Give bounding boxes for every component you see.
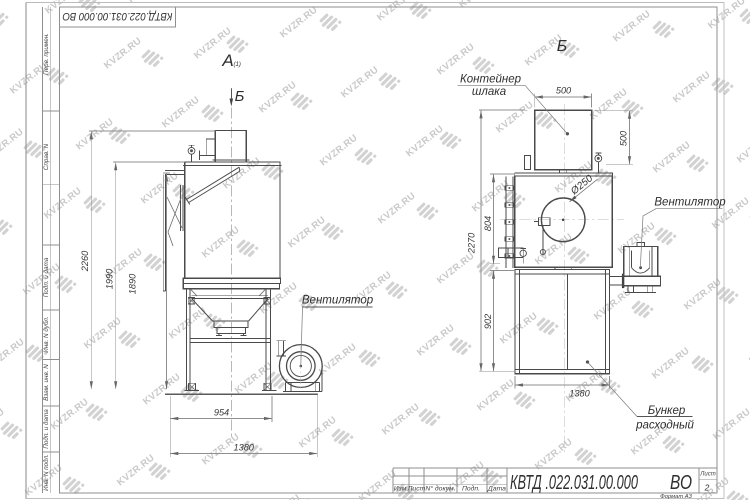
svg-text:KVZR.RU: KVZR.RU [533, 436, 575, 472]
svg-text:804: 804 [483, 216, 493, 231]
svg-text:KVZR.RU: KVZR.RU [42, 185, 84, 221]
svg-text:А: А [221, 51, 233, 70]
svg-text:KVZR.RU: KVZR.RU [611, 8, 653, 44]
svg-text:Подп. и дата: Подп. и дата [42, 409, 50, 449]
svg-text:KVZR.RU: KVZR.RU [375, 0, 417, 23]
svg-text:Лист: Лист [407, 486, 426, 493]
svg-text:Перв. примен.: Перв. примен. [43, 33, 50, 75]
svg-text:KVZR.RU: KVZR.RU [690, 475, 732, 500]
svg-text:KVZR.RU: KVZR.RU [82, 315, 124, 351]
svg-text:KVZR.RU: KVZR.RU [404, 123, 446, 159]
svg-text:KVZR.RU: KVZR.RU [286, 214, 328, 250]
svg-text:KVZR.RU: KVZR.RU [376, 190, 418, 226]
svg-text:KVZR.RU: KVZR.RU [0, 336, 27, 372]
svg-text:KVZR.RU: KVZR.RU [592, 286, 634, 322]
svg-text:KVZR.RU: KVZR.RU [533, 231, 575, 267]
svg-text:2270: 2270 [467, 232, 477, 254]
svg-text:KVZR.RU: KVZR.RU [651, 139, 693, 175]
svg-text:Вентилятор: Вентилятор [302, 295, 374, 307]
svg-text:500: 500 [618, 130, 628, 146]
svg-text:KVZR.RU: KVZR.RU [498, 310, 540, 346]
svg-text:KVZR.RU: KVZR.RU [141, 371, 183, 407]
svg-text:500: 500 [556, 86, 572, 96]
svg-text:KVZR.RU: KVZR.RU [435, 41, 477, 77]
svg-text:KVZR.RU: KVZR.RU [297, 414, 339, 450]
svg-text:KVZR.RU: KVZR.RU [0, 126, 26, 162]
svg-text:KVZR.RU: KVZR.RU [494, 99, 536, 135]
svg-text:Контейнер: Контейнер [460, 74, 522, 86]
svg-text:КВТД.022.031.00.000 ВО: КВТД.022.031.00.000 ВО [62, 10, 172, 22]
svg-text:KVZR.RU: KVZR.RU [49, 396, 91, 432]
svg-text:Подп.: Подп. [462, 485, 480, 493]
svg-text:Дата: Дата [487, 486, 506, 493]
svg-text:KVZR.RU: KVZR.RU [735, 129, 750, 165]
svg-text:N° докум.: N° докум. [425, 485, 455, 493]
svg-text:KVZR.RU: KVZR.RU [415, 322, 457, 358]
svg-text:1380: 1380 [233, 443, 254, 453]
svg-text:KVZR.RU: KVZR.RU [102, 35, 144, 71]
svg-text:КВТД .022.031.00.000: КВТД .022.031.00.000 [510, 472, 638, 494]
svg-text:KVZR.RU: KVZR.RU [671, 69, 713, 105]
svg-text:Подп. и дата: Подп. и дата [42, 257, 50, 297]
svg-text:Взам. инв. N: Взам. инв. N [43, 364, 50, 401]
svg-text:1380: 1380 [569, 389, 590, 399]
svg-text:KVZR.RU: KVZR.RU [650, 345, 692, 381]
svg-text:Изм.: Изм. [394, 486, 409, 493]
svg-text:Инв. N дубл.: Инв. N дубл. [42, 316, 50, 352]
svg-text:1890: 1890 [128, 273, 138, 294]
svg-text:KVZR.RU: KVZR.RU [457, 0, 499, 10]
svg-text:KVZR.RU: KVZR.RU [475, 377, 517, 413]
svg-text:2260: 2260 [80, 250, 90, 272]
svg-text:KVZR.RU: KVZR.RU [435, 250, 477, 286]
svg-text:Инв. N подл.: Инв. N подл. [42, 454, 50, 491]
svg-text:Справ. N: Справ. N [43, 143, 50, 170]
svg-text:902: 902 [483, 314, 493, 329]
svg-text:1990: 1990 [104, 268, 114, 289]
svg-text:KVZR.RU: KVZR.RU [200, 224, 242, 260]
svg-text:KVZR.RU: KVZR.RU [318, 132, 360, 168]
svg-text:Лист: Лист [699, 472, 715, 478]
svg-text:ВО: ВО [670, 472, 692, 494]
svg-text:KVZR.RU: KVZR.RU [317, 341, 359, 377]
svg-text:KVZR.RU: KVZR.RU [21, 261, 63, 297]
svg-text:954: 954 [214, 408, 229, 418]
svg-text:KVZR.RU: KVZR.RU [339, 64, 381, 100]
svg-text:2: 2 [704, 483, 710, 493]
svg-text:(1): (1) [234, 62, 241, 68]
svg-text:KVZR.RU: KVZR.RU [221, 155, 263, 191]
svg-text:Формат А3: Формат А3 [660, 494, 692, 500]
svg-text:Бункер: Бункер [648, 405, 686, 417]
svg-text:KVZR.RU: KVZR.RU [278, 4, 320, 40]
svg-text:расходный: расходный [635, 420, 694, 432]
svg-text:Б: Б [235, 88, 245, 105]
svg-text:KVZR.RU: KVZR.RU [380, 401, 422, 437]
svg-text:KVZR.RU: KVZR.RU [160, 94, 202, 130]
svg-text:Б: Б [557, 38, 567, 55]
svg-text:Вентилятор: Вентилятор [654, 197, 726, 209]
svg-text:шлака: шлака [472, 86, 506, 98]
